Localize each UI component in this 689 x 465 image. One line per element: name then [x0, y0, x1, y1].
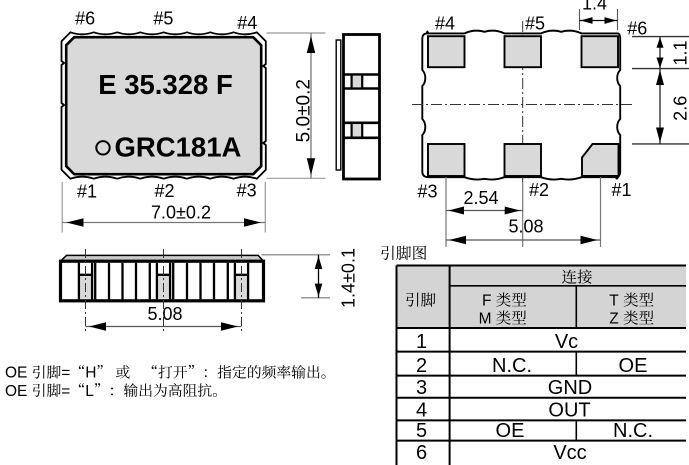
svg-text:OE: OE [5, 365, 27, 382]
svg-text:Z: Z [609, 311, 618, 328]
svg-text:5.0±0.2: 5.0±0.2 [293, 79, 314, 142]
svg-text:OE: OE [496, 420, 525, 442]
svg-text:#2: #2 [529, 180, 549, 200]
svg-text:5.08: 5.08 [508, 217, 543, 237]
svg-text:4: 4 [416, 400, 427, 422]
svg-text:OUT: OUT [548, 400, 590, 422]
svg-text:F: F [482, 293, 491, 310]
svg-text:#1: #1 [611, 180, 631, 200]
svg-text:#4: #4 [435, 14, 455, 34]
svg-text:#1: #1 [77, 182, 97, 202]
svg-text:M: M [479, 311, 492, 328]
svg-text:GRC181A: GRC181A [115, 131, 242, 162]
svg-text:H: H [85, 365, 96, 382]
svg-text:2: 2 [416, 355, 427, 377]
svg-text:T: T [609, 293, 619, 310]
svg-text:#6: #6 [627, 19, 647, 39]
svg-text:Vc: Vc [555, 331, 578, 353]
svg-text:L: L [85, 383, 94, 400]
svg-text:1.4: 1.4 [582, 0, 607, 14]
svg-text:#4: #4 [237, 13, 257, 33]
svg-text:=: = [61, 365, 70, 382]
svg-text:OE: OE [619, 355, 648, 377]
svg-text:GND: GND [548, 377, 592, 399]
svg-text:5: 5 [416, 420, 427, 442]
svg-text:OE: OE [5, 383, 27, 400]
svg-text:#6: #6 [75, 9, 95, 29]
svg-text:5.08: 5.08 [147, 304, 182, 324]
svg-text:2.54: 2.54 [463, 188, 498, 208]
svg-text:1.1: 1.1 [671, 40, 689, 65]
svg-text:E 35.328 F: E 35.328 F [98, 69, 233, 100]
svg-text:Vcc: Vcc [553, 442, 586, 464]
svg-text:3: 3 [416, 377, 427, 399]
svg-text:2.6: 2.6 [671, 96, 689, 121]
svg-text:#3: #3 [237, 181, 257, 201]
svg-text:6: 6 [416, 442, 427, 464]
svg-text:#2: #2 [154, 181, 174, 201]
svg-text:N.C.: N.C. [492, 355, 532, 377]
svg-text:1: 1 [416, 331, 427, 353]
svg-text:#5: #5 [153, 8, 173, 28]
svg-text:N.C.: N.C. [613, 420, 653, 442]
svg-text:1.4±0.1: 1.4±0.1 [338, 248, 358, 308]
svg-text:#5: #5 [525, 14, 545, 34]
svg-text:7.0±0.2: 7.0±0.2 [151, 203, 211, 223]
svg-text:=: = [61, 383, 70, 400]
svg-text:#3: #3 [417, 182, 437, 202]
